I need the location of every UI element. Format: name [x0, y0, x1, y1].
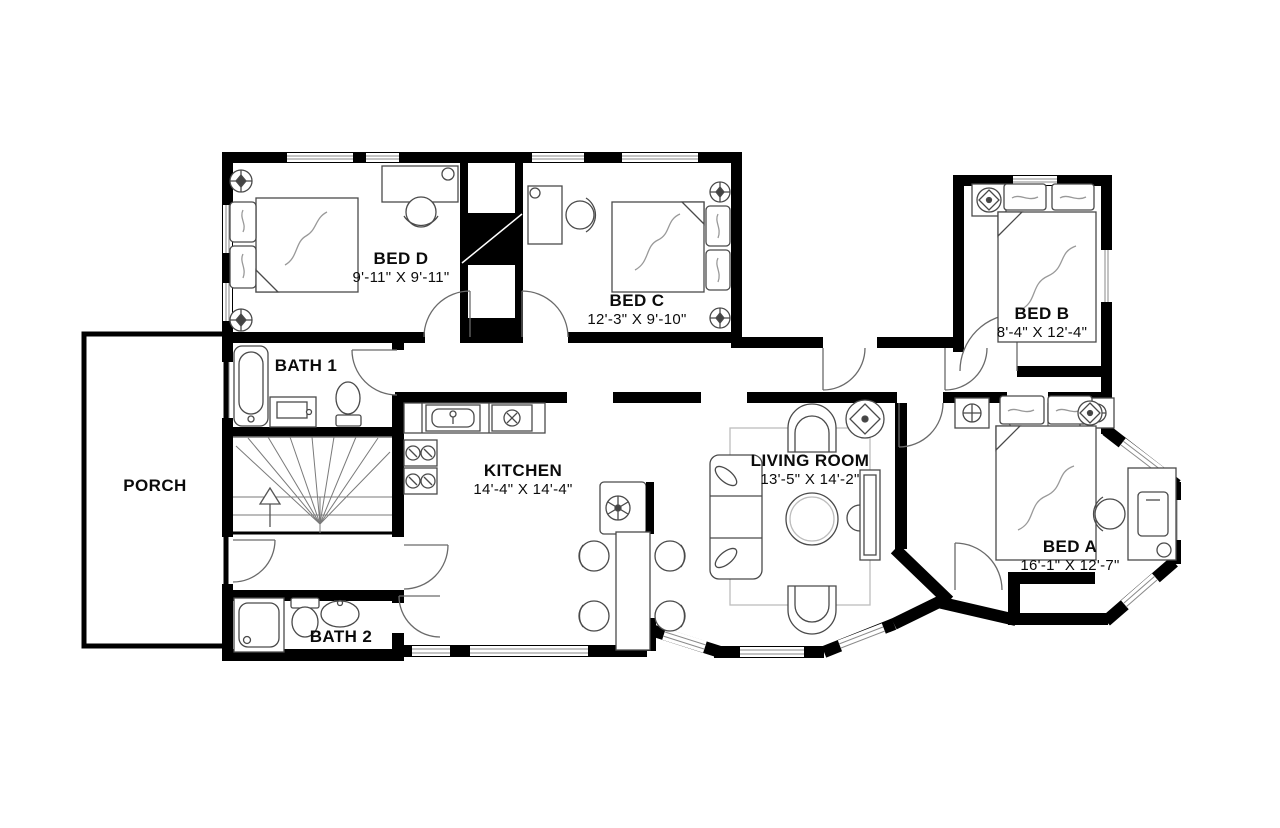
room-name: PORCH	[123, 476, 186, 496]
floor-plan: BED D 9'-11" X 9'-11" BED C 12'-3" X 9'-…	[0, 0, 1280, 828]
living-room-furniture	[710, 400, 884, 634]
room-name: BED A	[1020, 537, 1119, 557]
room-name: KITCHEN	[473, 461, 572, 481]
hall-door	[823, 348, 865, 390]
ceiling-fan-icon	[1078, 401, 1102, 425]
room-label-bath-1: BATH 1	[275, 356, 338, 376]
toilet-icon	[336, 382, 361, 426]
room-label-bath-2: BATH 2	[310, 627, 373, 647]
room-label-bed-c: BED C 12'-3" X 9'-10"	[587, 291, 686, 329]
bath-2-door	[399, 596, 440, 637]
room-label-kitchen: KITCHEN 14'-4" X 14'-4"	[473, 461, 572, 499]
room-name: BED B	[997, 304, 1088, 324]
room-dims: 14'-4" X 14'-4"	[473, 481, 572, 499]
room-dims: 12'-3" X 9'-10"	[587, 311, 686, 329]
room-name: LIVING ROOM	[751, 451, 870, 471]
room-name: BATH 1	[275, 356, 338, 376]
sink-icon	[426, 405, 480, 431]
room-label-bed-a: BED A 16'-1" X 12'-7"	[1020, 537, 1119, 575]
room-name: BATH 2	[310, 627, 373, 647]
sink-icon	[321, 601, 359, 628]
room-dims: 16'-1" X 12'-7"	[1020, 557, 1119, 575]
vanity-sink-icon	[270, 397, 316, 427]
armchair-icon	[788, 586, 836, 634]
bathtub-icon	[234, 346, 268, 426]
stove-icon	[404, 440, 437, 494]
room-dims: 8'-4" X 12'-4"	[997, 324, 1088, 342]
nightstand-icon	[955, 398, 989, 428]
ceiling-fan-icon	[972, 184, 1006, 216]
staircase	[233, 437, 392, 533]
room-name: BED D	[352, 249, 449, 269]
bed-icon	[612, 202, 730, 292]
room-label-living-room: LIVING ROOM 13'-5" X 14'-2"	[751, 451, 870, 489]
armchair-icon	[788, 404, 836, 452]
bed-b-vestibule-door	[945, 348, 987, 390]
desk-icon	[1128, 468, 1176, 560]
cooktop-icon	[492, 405, 532, 431]
ceiling-light-icon	[710, 182, 730, 202]
bed-a-lower-door	[955, 543, 1002, 590]
coffee-table-icon	[786, 493, 838, 545]
bath-1-door	[352, 350, 397, 395]
chair-icon	[1094, 497, 1125, 531]
room-label-porch: PORCH	[123, 476, 186, 496]
ceiling-fan-icon	[846, 400, 884, 438]
ceiling-light-icon	[230, 170, 252, 192]
bed-c-door	[522, 291, 568, 337]
room-label-bed-d: BED D 9'-11" X 9'-11"	[352, 249, 449, 287]
entry-door	[233, 540, 275, 582]
room-name: BED C	[587, 291, 686, 311]
ceiling-light-icon	[230, 309, 252, 331]
shower-icon	[234, 598, 284, 652]
stairs-up-arrow	[260, 488, 280, 527]
room-label-bed-b: BED B 8'-4" X 12'-4"	[997, 304, 1088, 342]
desk-icon	[528, 186, 562, 244]
bed-icon	[230, 198, 358, 292]
ceiling-light-icon	[710, 308, 730, 328]
kitchen-door	[404, 545, 448, 589]
room-dims: 13'-5" X 14'-2"	[751, 471, 870, 489]
room-dims: 9'-11" X 9'-11"	[352, 269, 449, 287]
bed-a-furniture	[955, 396, 1176, 560]
chair-icon	[566, 198, 595, 232]
kitchen-furniture	[404, 403, 685, 650]
island-hood-icon	[600, 482, 654, 534]
